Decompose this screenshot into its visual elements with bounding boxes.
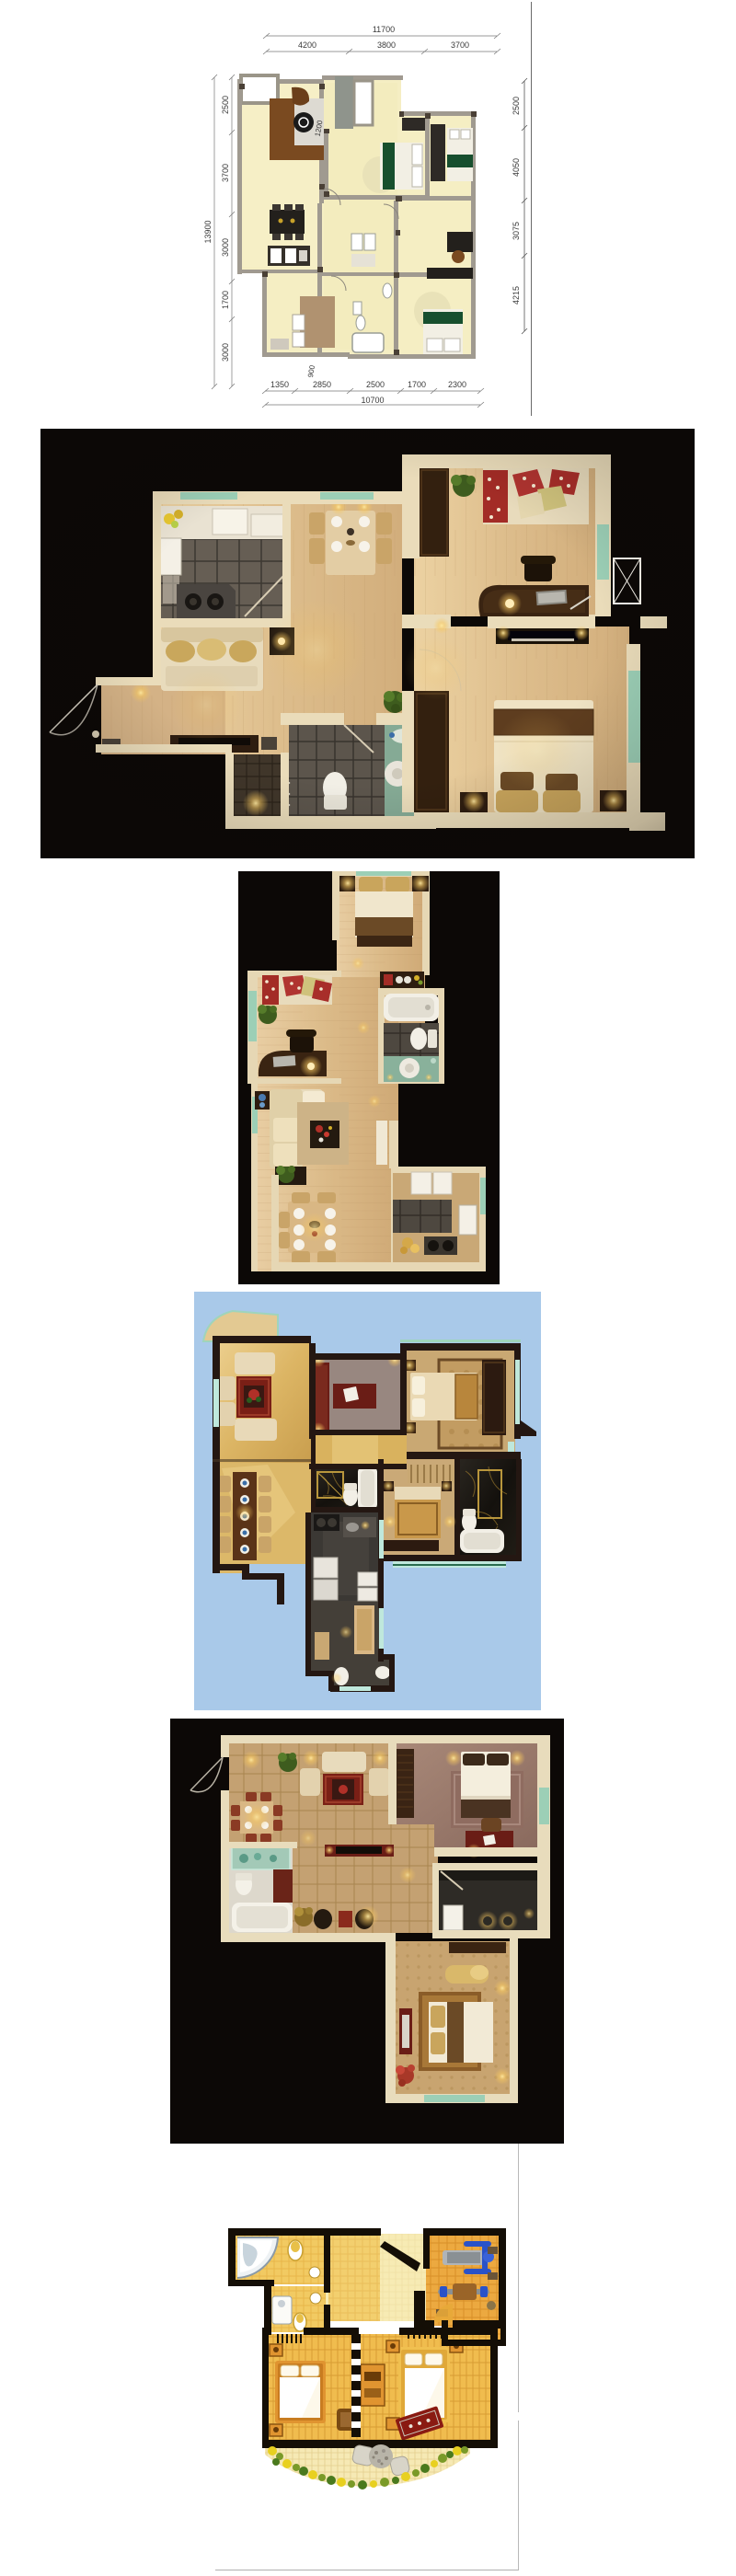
svg-text:3000: 3000 — [221, 343, 230, 362]
svg-text:2500: 2500 — [221, 96, 230, 114]
svg-text:10700: 10700 — [361, 396, 384, 405]
svg-text:2850: 2850 — [313, 380, 331, 389]
svg-text:4200: 4200 — [298, 40, 316, 50]
svg-text:3000: 3000 — [221, 238, 230, 257]
svg-text:1350: 1350 — [270, 380, 289, 389]
svg-text:900: 900 — [306, 364, 316, 378]
svg-text:2500: 2500 — [366, 380, 385, 389]
svg-text:3800: 3800 — [377, 40, 396, 50]
svg-text:1700: 1700 — [408, 380, 426, 389]
svg-text:13900: 13900 — [203, 220, 213, 243]
svg-text:1700: 1700 — [221, 291, 230, 309]
svg-text:3700: 3700 — [221, 164, 230, 182]
svg-text:4215: 4215 — [512, 286, 521, 305]
svg-text:2300: 2300 — [448, 380, 466, 389]
svg-text:3075: 3075 — [512, 222, 521, 240]
svg-text:4050: 4050 — [512, 158, 521, 177]
svg-text:11700: 11700 — [373, 25, 395, 34]
svg-text:3700: 3700 — [451, 40, 469, 50]
svg-text:2500: 2500 — [512, 97, 521, 115]
